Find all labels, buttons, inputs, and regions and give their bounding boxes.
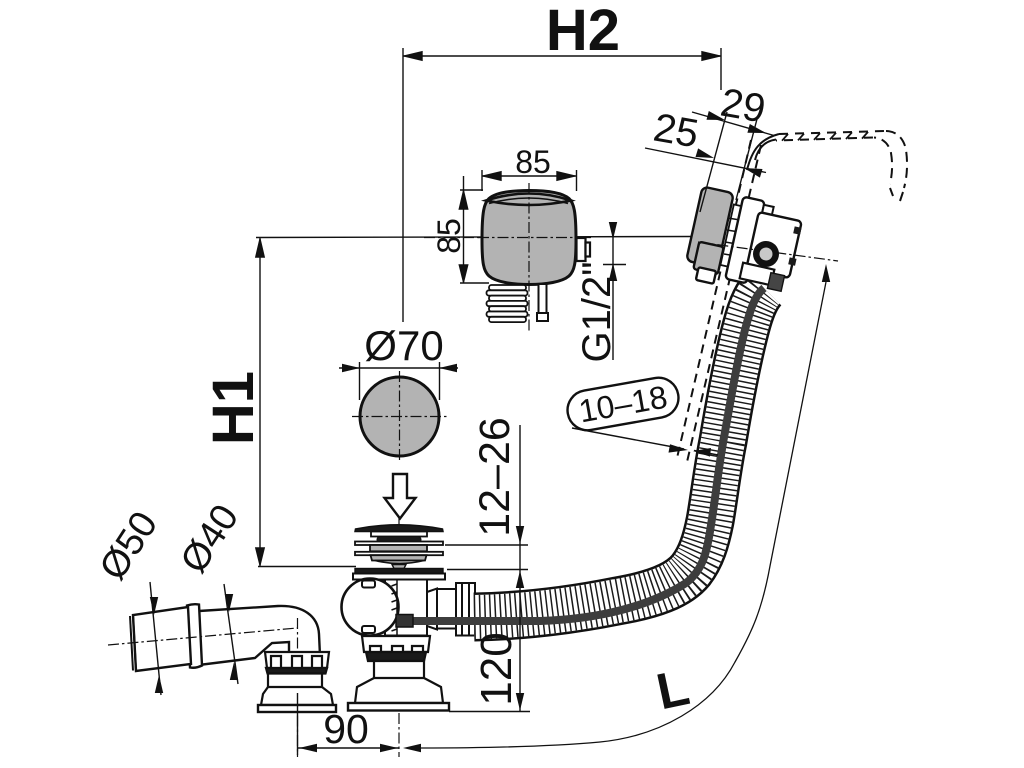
- svg-text:H1: H1: [201, 371, 266, 445]
- svg-text:29: 29: [717, 80, 768, 131]
- svg-text:12–26: 12–26: [471, 417, 519, 537]
- svg-text:Ø70: Ø70: [364, 322, 443, 369]
- svg-text:G1/2": G1/2": [575, 262, 619, 363]
- svg-text:90: 90: [323, 706, 369, 752]
- svg-text:H2: H2: [546, 0, 620, 63]
- svg-text:85: 85: [431, 218, 467, 254]
- svg-text:85: 85: [515, 144, 551, 180]
- svg-text:25: 25: [650, 105, 701, 156]
- svg-text:120: 120: [472, 632, 521, 705]
